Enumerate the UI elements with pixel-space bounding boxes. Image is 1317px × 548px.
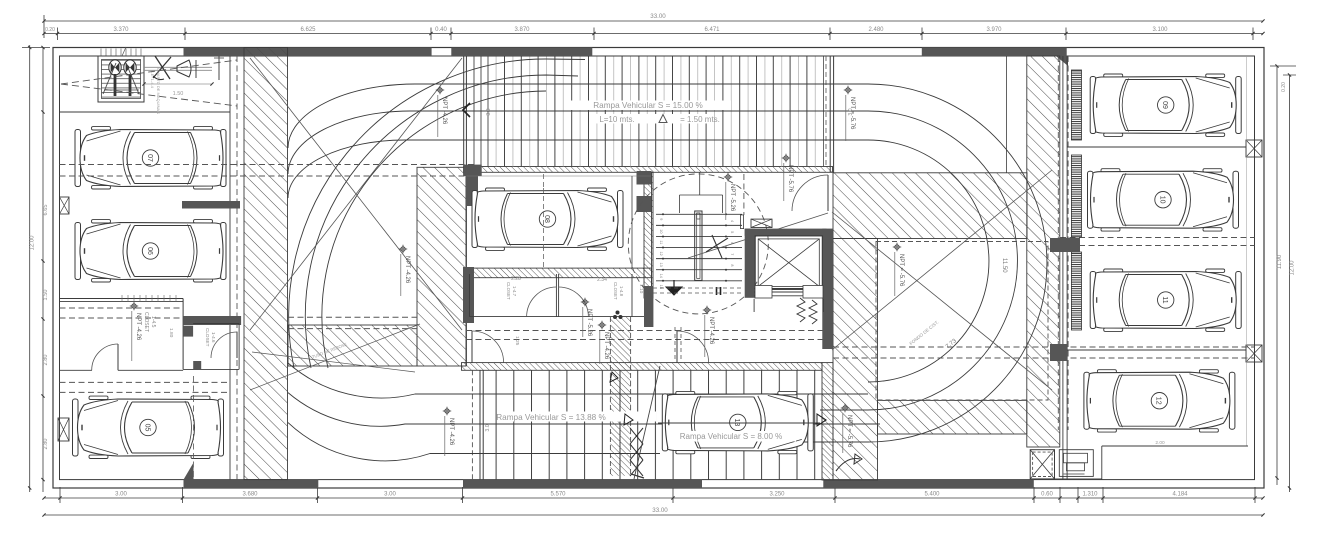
svg-text:3.870: 3.870 — [514, 27, 530, 33]
svg-text:L=10 mts.: L=10 mts. — [599, 115, 634, 124]
svg-text:2.28: 2.28 — [511, 276, 521, 282]
svg-text:CLOSET: CLOSET — [506, 282, 511, 300]
svg-text:14: 14 — [659, 274, 663, 278]
svg-text:10: 10 — [659, 229, 663, 233]
svg-text:2.80: 2.80 — [43, 355, 49, 366]
svg-text:4.184: 4.184 — [1172, 492, 1188, 498]
svg-text:1-4.7: 1-4.7 — [512, 286, 517, 297]
svg-text:5.400: 5.400 — [924, 492, 940, 498]
svg-text:12: 12 — [1155, 397, 1162, 405]
svg-text:5: 5 — [730, 231, 734, 233]
svg-text:1.80: 1.80 — [168, 328, 174, 338]
svg-text:3.0: 3.0 — [485, 424, 491, 431]
svg-text:1.310: 1.310 — [1082, 492, 1098, 498]
svg-text:7: 7 — [730, 253, 734, 255]
svg-text:CLOSET: CLOSET — [613, 282, 618, 300]
svg-text:1-4.8: 1-4.8 — [619, 286, 624, 297]
svg-text:1.50: 1.50 — [173, 91, 184, 97]
svg-text:11.90: 11.90 — [1277, 254, 1283, 269]
svg-text:CLOSET: CLOSET — [205, 328, 210, 347]
svg-text:0.20: 0.20 — [45, 27, 55, 33]
svg-text:12: 12 — [659, 251, 663, 255]
svg-text:13: 13 — [733, 419, 740, 427]
svg-text:NPT -4.26: NPT -4.26 — [603, 332, 609, 360]
svg-text:33.00: 33.00 — [650, 13, 666, 20]
svg-text:NPT -4.26: NPT -4.26 — [404, 256, 410, 284]
svg-text:NPT -4.26: NPT -4.26 — [441, 97, 447, 125]
svg-text:4: 4 — [730, 220, 734, 222]
svg-text:2.480: 2.480 — [868, 27, 884, 33]
svg-text:3.0: 3.0 — [486, 108, 492, 115]
svg-text:1.10: 1.10 — [638, 284, 644, 294]
svg-text:3.00: 3.00 — [115, 492, 127, 498]
svg-text:NPT = -5.76: NPT = -5.76 — [849, 97, 855, 130]
svg-text:CLOSET: CLOSET — [143, 312, 149, 332]
svg-text:2.80: 2.80 — [43, 439, 49, 450]
svg-text:NPT -4.26: NPT -4.26 — [708, 317, 714, 345]
svg-text:NPT -4.26: NPT -4.26 — [135, 313, 141, 341]
svg-text:0.60: 0.60 — [1041, 492, 1053, 498]
svg-text:13: 13 — [659, 263, 663, 267]
svg-text:8: 8 — [730, 264, 734, 266]
svg-text:12.00: 12.00 — [30, 235, 36, 251]
svg-text:3.970: 3.970 — [986, 27, 1002, 33]
svg-text:S.E. 1-4.4: S.E. 1-4.4 — [150, 70, 155, 89]
svg-text:3.680: 3.680 — [242, 492, 258, 498]
svg-text:1-4.5: 1-4.5 — [150, 316, 156, 328]
svg-text:2.34: 2.34 — [597, 277, 607, 283]
svg-text:0.40: 0.40 — [435, 27, 447, 33]
svg-text:1.50: 1.50 — [43, 290, 49, 301]
svg-text:NPT -5.26: NPT -5.26 — [586, 309, 592, 337]
svg-text:NPT -4.26: NPT -4.26 — [448, 418, 454, 446]
svg-text:NPT = -5.76: NPT = -5.76 — [898, 254, 904, 287]
svg-text:05: 05 — [143, 424, 150, 432]
svg-text:Rampa Vehicular S = 13.88 %: Rampa Vehicular S = 13.88 % — [496, 413, 605, 422]
svg-text:3.250: 3.250 — [769, 492, 785, 498]
svg-text:2.00: 2.00 — [1155, 440, 1165, 446]
svg-text:09: 09 — [1161, 101, 1168, 109]
svg-text:0.20: 0.20 — [1281, 82, 1287, 92]
svg-text:3.370: 3.370 — [113, 27, 129, 33]
svg-text:= 1.50 mts.: = 1.50 mts. — [680, 115, 720, 124]
svg-text:Rampa Vehicular S = 8.00 %: Rampa Vehicular S = 8.00 % — [680, 432, 783, 441]
svg-text:1-4.6: 1-4.6 — [211, 332, 216, 343]
svg-text:CUARTO DE MAQUINAS: CUARTO DE MAQUINAS — [156, 68, 161, 114]
svg-text:06: 06 — [146, 247, 153, 255]
svg-text:NPT -5.76: NPT -5.76 — [787, 165, 793, 193]
svg-text:9: 9 — [659, 218, 663, 220]
svg-text:3.100: 3.100 — [1152, 27, 1168, 33]
svg-text:11: 11 — [659, 240, 663, 244]
svg-text:3.00: 3.00 — [384, 492, 396, 498]
svg-text:11: 11 — [1161, 296, 1168, 303]
svg-text:07: 07 — [146, 154, 153, 162]
svg-text:6.471: 6.471 — [704, 27, 720, 33]
svg-text:6.625: 6.625 — [300, 27, 316, 33]
svg-text:5.570: 5.570 — [550, 492, 566, 498]
svg-text:NPT -5.26: NPT -5.26 — [729, 184, 735, 212]
svg-text:12.00: 12.00 — [1290, 260, 1296, 276]
svg-text:10: 10 — [1158, 196, 1165, 204]
svg-text:6.65: 6.65 — [43, 205, 49, 216]
svg-text:11.50: 11.50 — [1001, 258, 1007, 273]
svg-text:Rampa Vehicular S = 15.00 %: Rampa Vehicular S = 15.00 % — [593, 101, 702, 110]
svg-text:33.00: 33.00 — [652, 507, 668, 514]
svg-text:NPT = -5.76: NPT = -5.76 — [846, 415, 852, 448]
svg-text:1.25: 1.25 — [514, 336, 520, 346]
